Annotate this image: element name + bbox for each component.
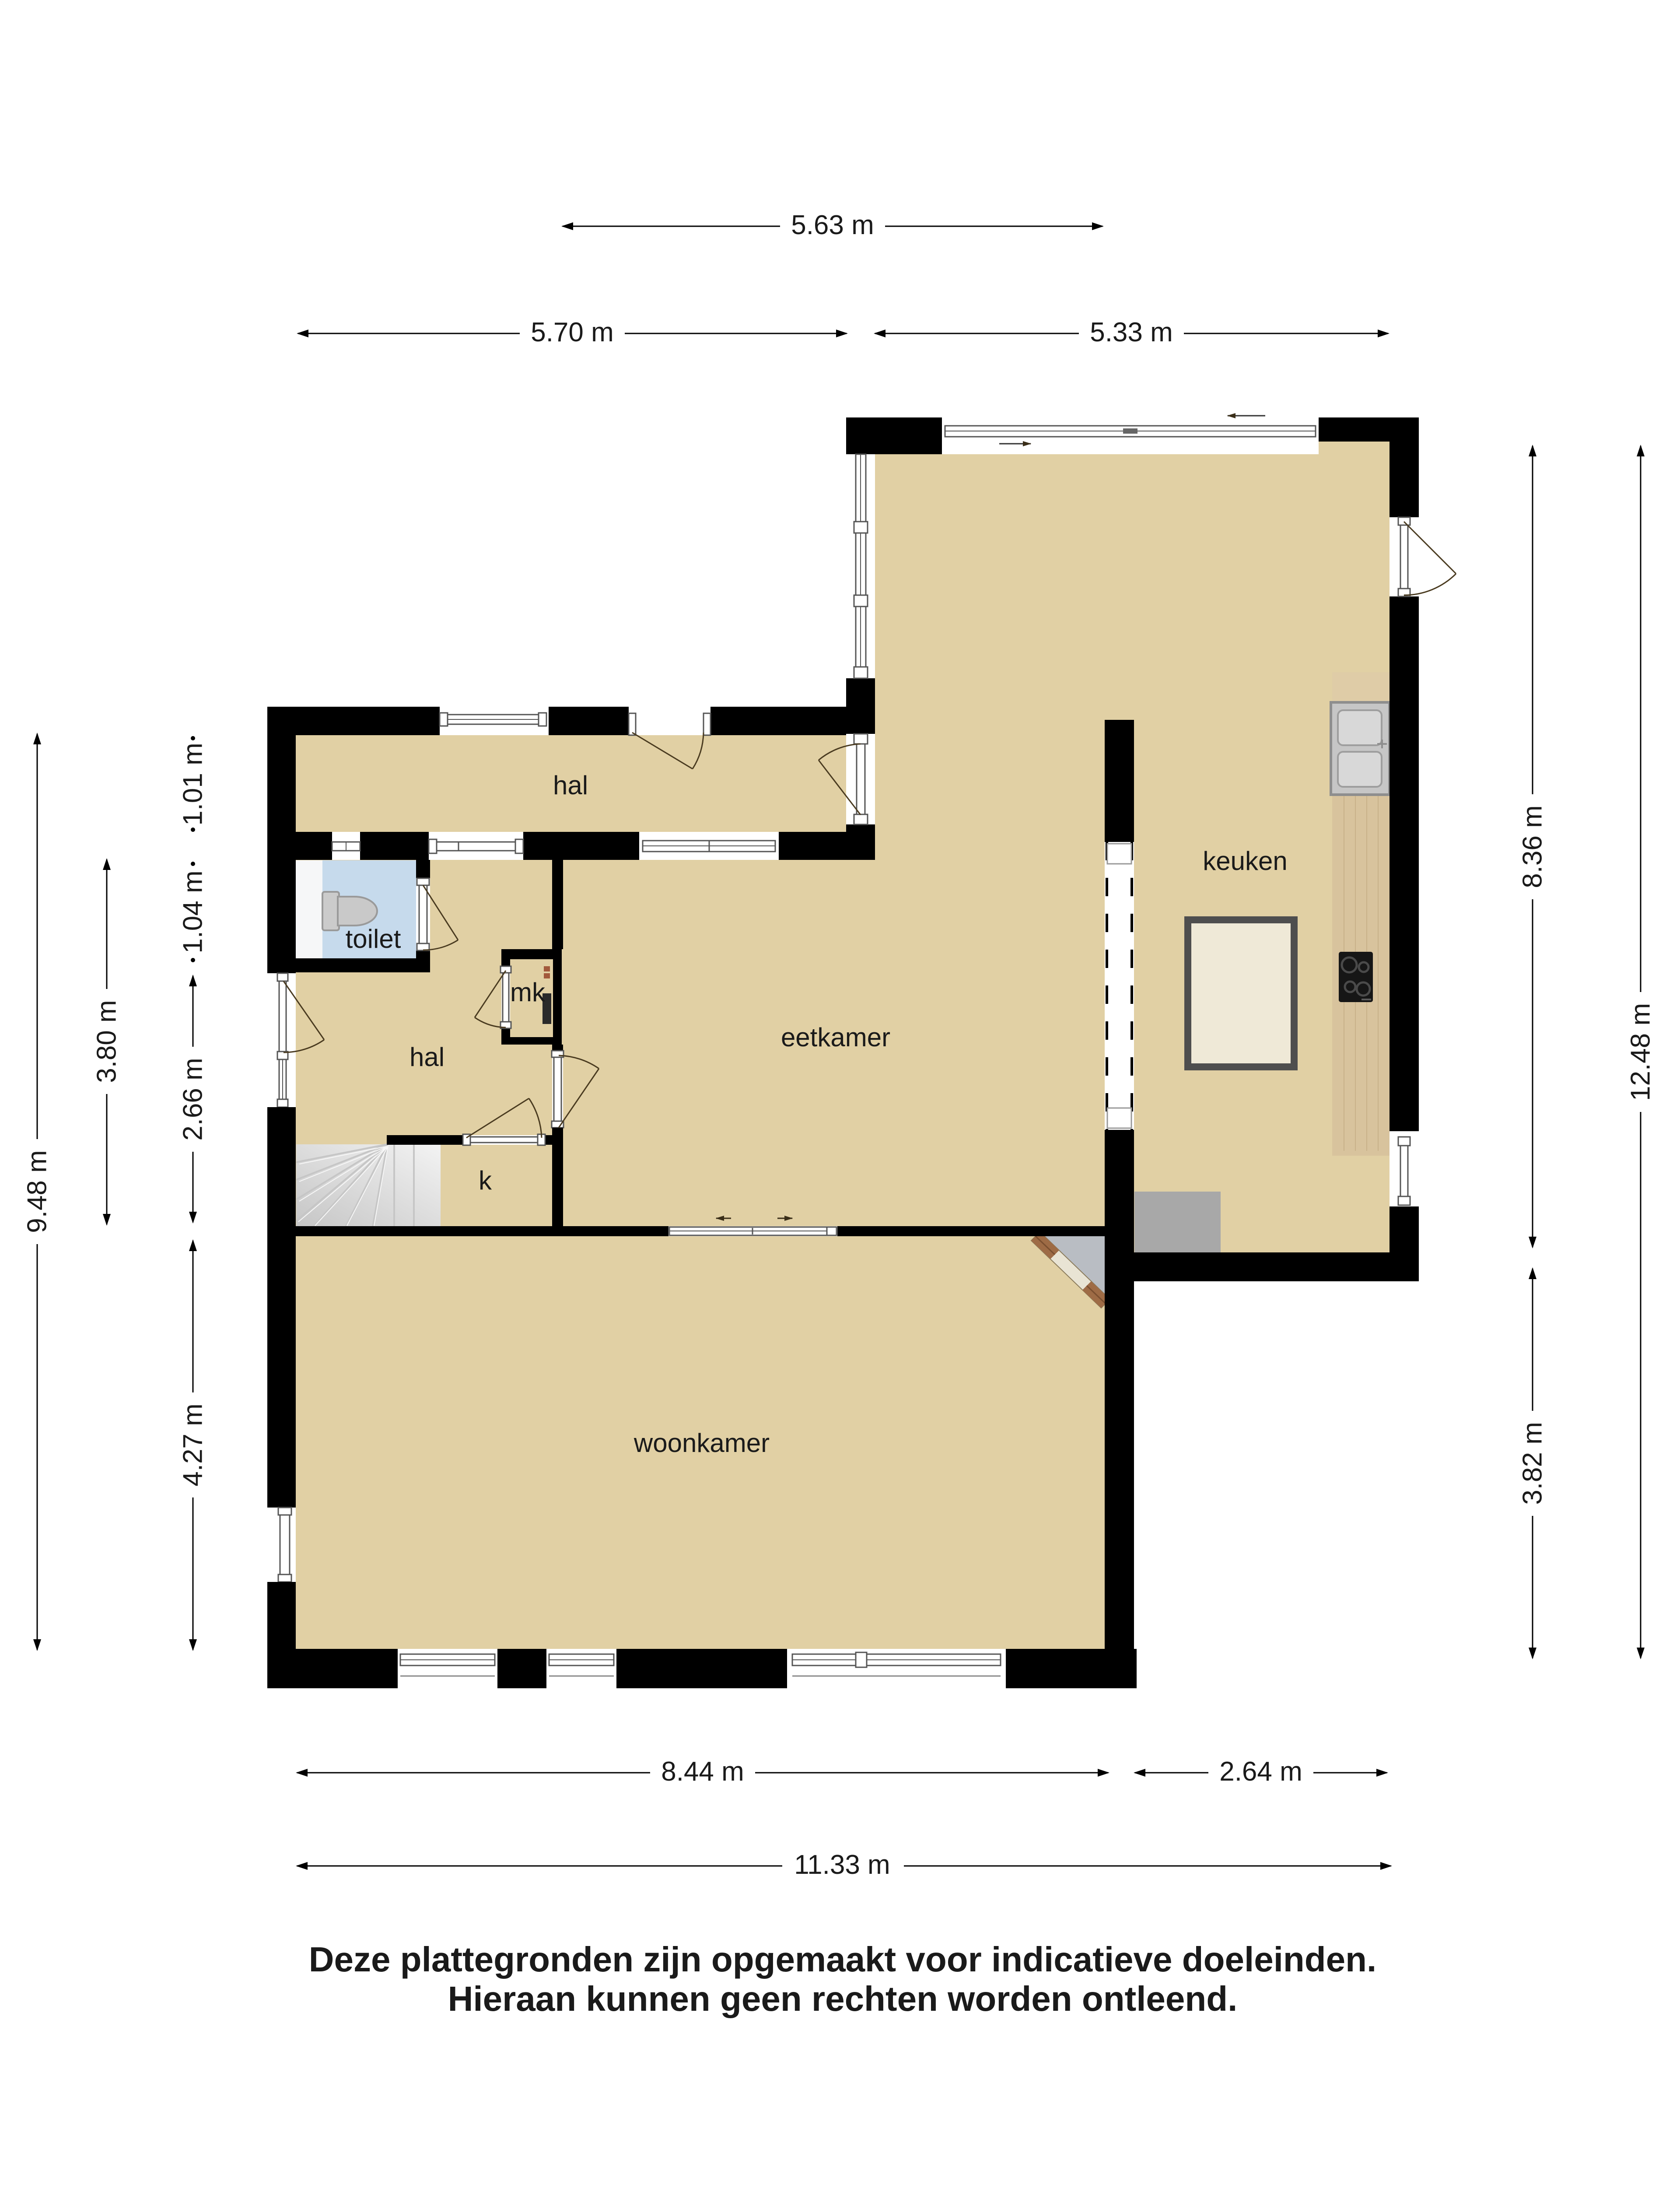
svg-text:Hieraan kunnen geen rechten wo: Hieraan kunnen geen rechten worden ontle…	[448, 1979, 1238, 2018]
svg-text:2.64 m: 2.64 m	[1219, 1757, 1302, 1787]
svg-text:mk: mk	[510, 978, 546, 1007]
svg-text:eetkamer: eetkamer	[781, 1023, 890, 1052]
svg-text:hal: hal	[553, 771, 588, 800]
svg-text:5.70 m: 5.70 m	[531, 317, 614, 347]
svg-text:11.33 m: 11.33 m	[794, 1850, 890, 1880]
svg-text:woonkamer: woonkamer	[633, 1428, 770, 1458]
svg-text:12.48 m: 12.48 m	[1626, 1003, 1656, 1101]
svg-text:keuken: keuken	[1203, 846, 1287, 876]
svg-text:Deze plattegronden zijn opgema: Deze plattegronden zijn opgemaakt voor i…	[309, 1940, 1376, 1979]
svg-text:5.33 m: 5.33 m	[1090, 317, 1173, 347]
svg-text:3.80 m: 3.80 m	[92, 1000, 122, 1083]
svg-text:hal: hal	[409, 1042, 444, 1072]
svg-text:1.04 m: 1.04 m	[178, 870, 208, 954]
svg-text:k: k	[479, 1166, 492, 1195]
svg-text:4.27 m: 4.27 m	[178, 1403, 208, 1487]
svg-text:toilet: toilet	[346, 924, 401, 954]
svg-text:5.63 m: 5.63 m	[791, 210, 874, 240]
svg-text:8.36 m: 8.36 m	[1518, 805, 1548, 888]
svg-text:2.66 m: 2.66 m	[178, 1058, 208, 1141]
svg-text:3.82 m: 3.82 m	[1518, 1422, 1548, 1505]
svg-text:8.44 m: 8.44 m	[661, 1757, 744, 1787]
svg-text:1.01 m: 1.01 m	[178, 743, 208, 826]
svg-text:9.48 m: 9.48 m	[22, 1150, 52, 1233]
